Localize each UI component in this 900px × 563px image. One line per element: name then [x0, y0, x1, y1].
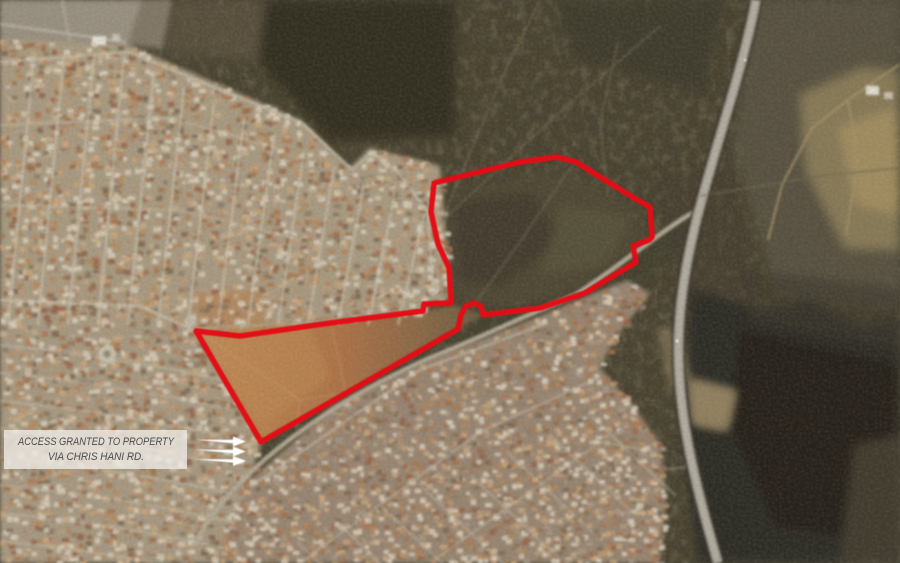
svg-text:VIA CHRIS HANI RD.: VIA CHRIS HANI RD.: [48, 451, 144, 463]
svg-text:ACCESS GRANTED TO PROPERTY: ACCESS GRANTED TO PROPERTY: [17, 436, 174, 448]
